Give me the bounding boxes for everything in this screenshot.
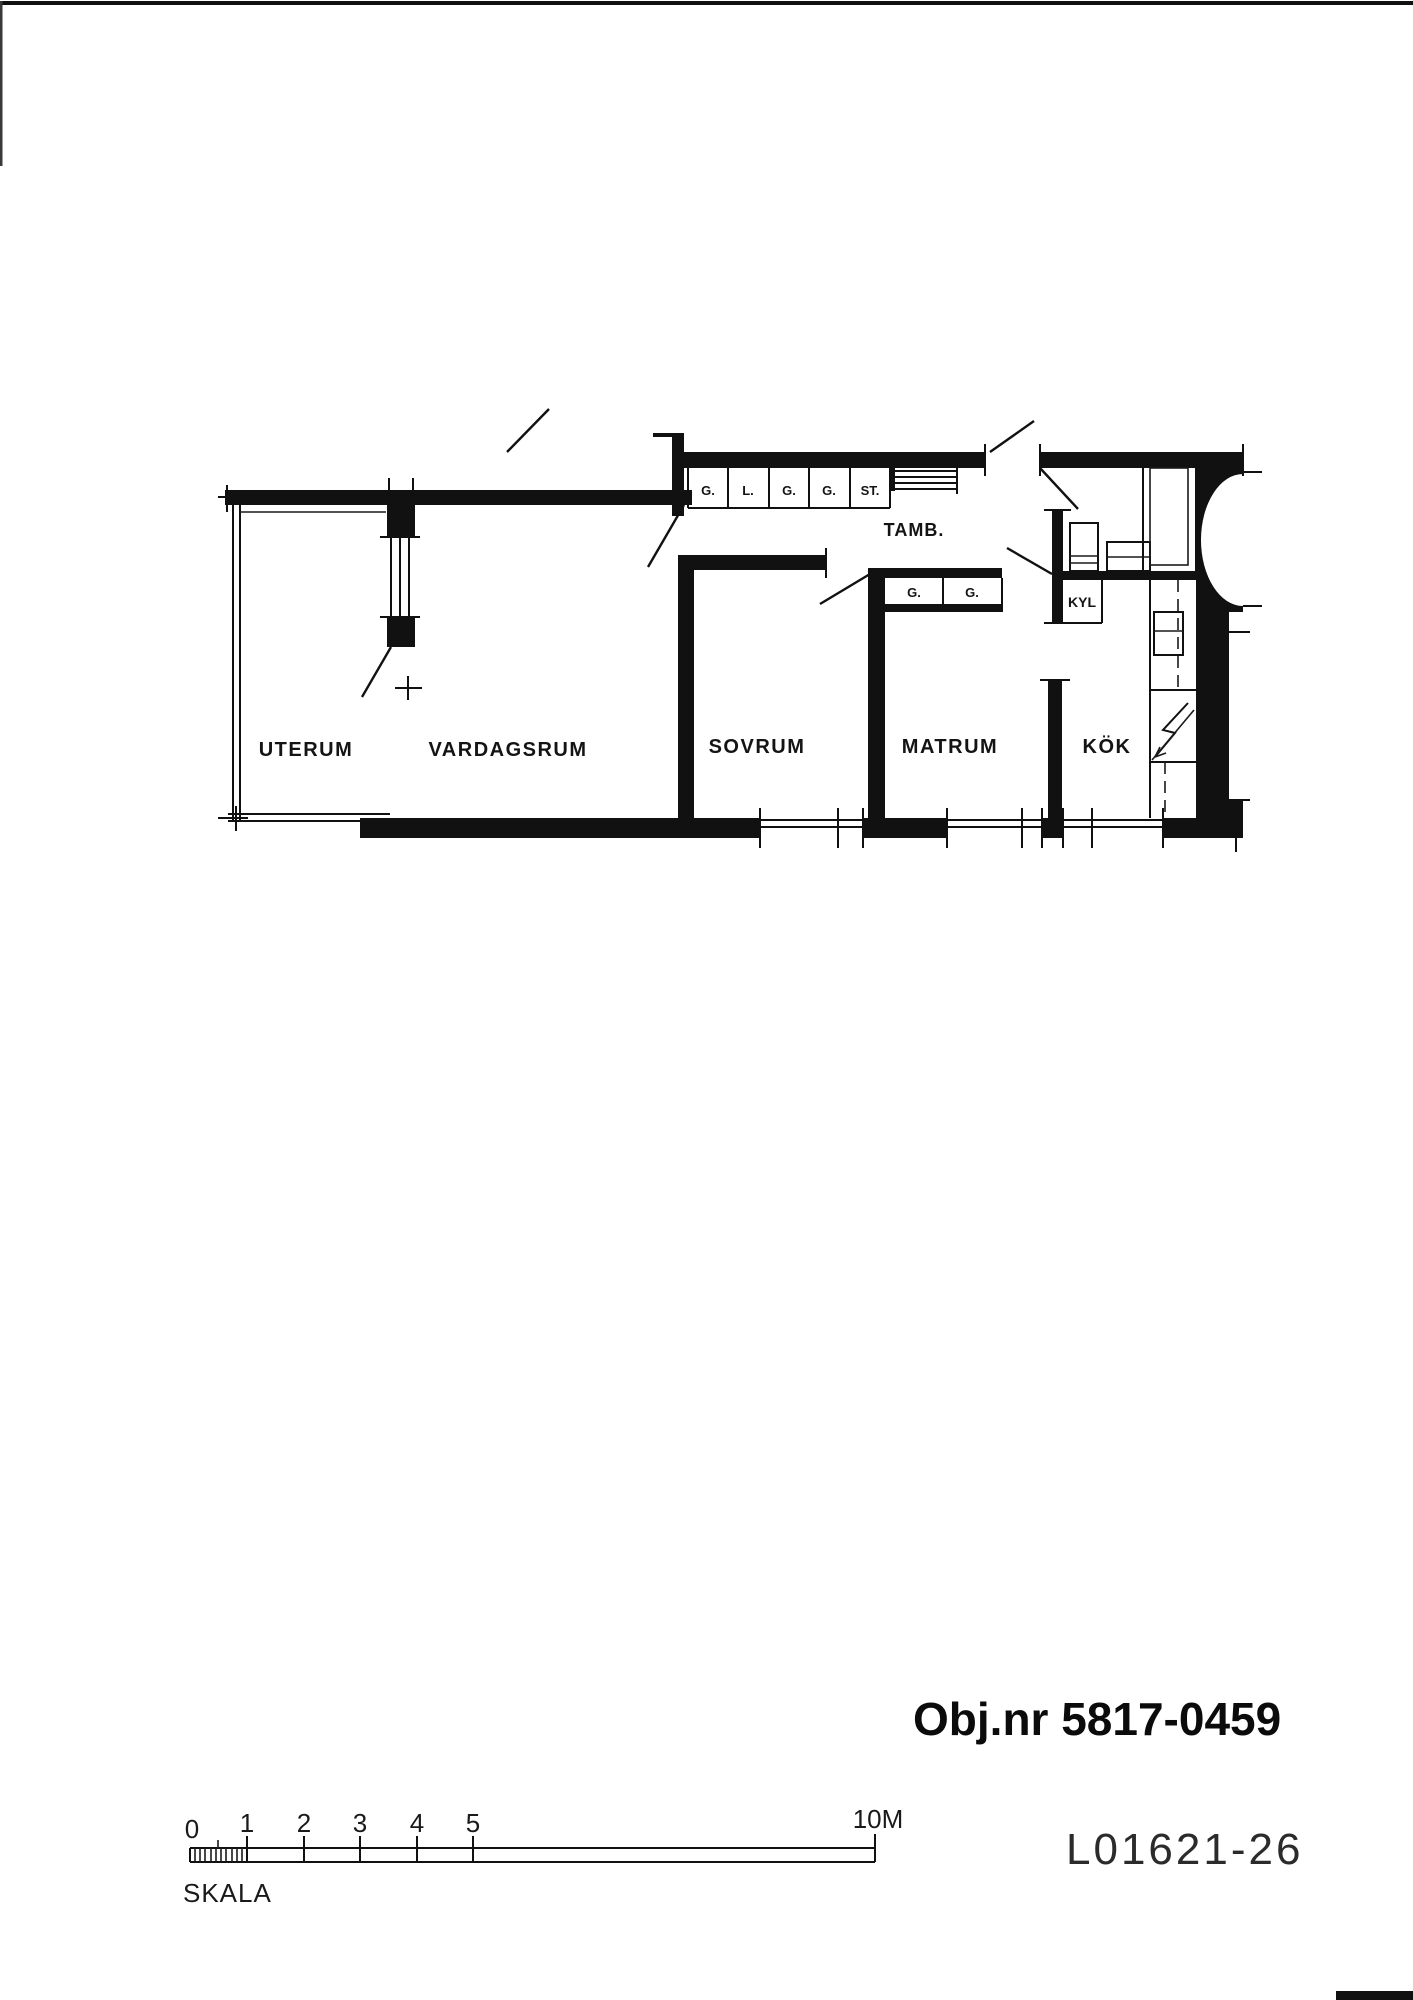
object-number: Obj.nr 5817-0459	[913, 1693, 1281, 1745]
room-label-sovrum: SOVRUM	[709, 736, 806, 758]
scale-tick-label: 1	[240, 1808, 254, 1838]
scale-bar: 0 1 2 3 4 5 10M SKALA	[183, 1804, 903, 1908]
closet-label: G.	[965, 585, 979, 600]
closet-label: G.	[782, 483, 796, 498]
room-label-uterum: UTERUM	[259, 739, 354, 761]
closet-label: G.	[701, 483, 715, 498]
floor-plan-drawing: UTERUM VARDAGSRUM SOVRUM MATRUM KÖK TAMB…	[0, 0, 1413, 2000]
closet-label: G.	[907, 585, 921, 600]
scale-max-label: 10M	[853, 1804, 904, 1834]
closet-label: G.	[822, 483, 836, 498]
room-label-tambur: TAMB.	[884, 520, 945, 540]
walls	[225, 433, 1285, 838]
scale-tick-label: 0	[185, 1814, 199, 1844]
sheet-number: L01621-26	[1066, 1825, 1303, 1874]
drafting-ticks	[218, 444, 1262, 852]
room-label-matrum: MATRUM	[902, 736, 998, 758]
scale-tick-label: 4	[410, 1808, 424, 1838]
scale-caption: SKALA	[183, 1878, 272, 1908]
room-label-kok: KÖK	[1083, 735, 1132, 758]
room-label-vardagsrum: VARDAGSRUM	[428, 739, 587, 761]
closet-label: L.	[742, 483, 754, 498]
closet-label: ST.	[861, 483, 880, 498]
scale-tick-label: 3	[353, 1808, 367, 1838]
fridge-label: KYL	[1068, 594, 1096, 610]
scale-tick-label: 5	[466, 1808, 480, 1838]
scale-tick-label: 2	[297, 1808, 311, 1838]
scanned-floor-plan-page: UTERUM VARDAGSRUM SOVRUM MATRUM KÖK TAMB…	[0, 0, 1413, 2000]
stove-symbol	[1152, 703, 1194, 760]
